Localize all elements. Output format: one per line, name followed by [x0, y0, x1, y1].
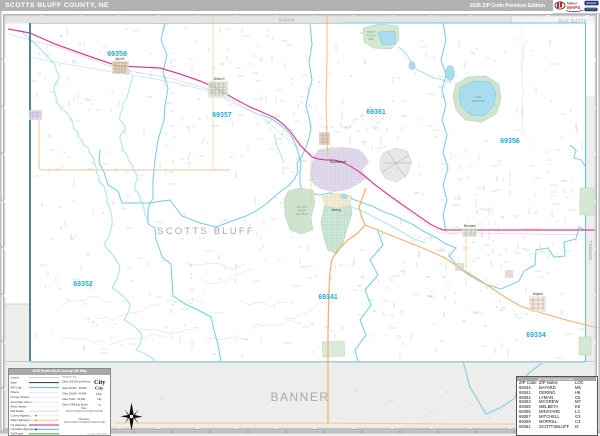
svg-text:City: City — [97, 398, 102, 401]
svg-text:Minor Streets: Minor Streets — [11, 404, 28, 408]
svg-text:MINATARE: MINATARE — [471, 99, 484, 103]
svg-text:Toll Roads: Toll Roads — [11, 431, 24, 435]
svg-text:Kilometers: Kilometers — [79, 418, 91, 421]
svg-text:Cities 4,999 and Below: Cities 4,999 and Below — [62, 403, 88, 406]
svg-text:Minatare: Minatare — [464, 224, 477, 228]
svg-text:ZIP Code: ZIP Code — [11, 385, 23, 389]
svg-text:Primary Streets: Primary Streets — [11, 395, 30, 399]
svg-text:69356: 69356 — [500, 138, 520, 145]
svg-text:Cities 5,000 - 24,999: Cities 5,000 - 24,999 — [62, 398, 86, 401]
svg-text:SIOUX: SIOUX — [279, 18, 296, 23]
svg-text:Cities 100,000 and Above: Cities 100,000 and Above — [62, 380, 91, 383]
svg-text:BOX BUTTE: BOX BUTTE — [559, 18, 587, 23]
svg-text:City: City — [98, 404, 103, 406]
svg-text:Cities 50,000 - 99,999: Cities 50,000 - 99,999 — [62, 387, 87, 390]
svg-text:Cities 25,000 - 49,999: Cities 25,000 - 49,999 — [62, 392, 87, 395]
svg-text:NWR: NWR — [368, 38, 374, 41]
svg-text:Bayard: Bayard — [533, 292, 543, 296]
svg-text:Scottsbluff: Scottsbluff — [330, 160, 346, 164]
svg-text:69357: 69357 — [212, 112, 232, 119]
svg-text:MAPS: MAPS — [567, 5, 580, 10]
svg-text:Morrill: Morrill — [116, 57, 125, 61]
svg-text:SCOTTS BLUFF: SCOTTS BLUFF — [157, 226, 255, 237]
svg-text:Streets: Streets — [11, 390, 20, 394]
svg-text:Copyright MarketMAPS: Copyright MarketMAPS — [87, 432, 109, 434]
svg-text:Mitchell: Mitchell — [214, 77, 225, 81]
svg-text:Gering: Gering — [331, 208, 341, 212]
svg-text:City: City — [96, 392, 102, 396]
svg-text:County: County — [11, 375, 20, 379]
svg-text:Miles: Miles — [81, 408, 87, 410]
svg-text:NAT MON: NAT MON — [296, 212, 308, 216]
svg-text:County Highways: County Highways — [11, 413, 33, 417]
svg-text:Rail Roads: Rail Roads — [11, 409, 25, 413]
svg-text:SCOTTS: SCOTTS — [297, 205, 308, 209]
svg-text:69334: 69334 — [526, 332, 546, 339]
svg-text:MORRILL: MORRILL — [588, 240, 593, 261]
svg-text:LAKE: LAKE — [475, 95, 482, 99]
svg-text:BANNER: BANNER — [270, 390, 329, 404]
svg-text:State Highways: State Highways — [11, 418, 30, 422]
svg-text:State: State — [11, 380, 18, 384]
svg-text:69361: 69361 — [366, 109, 386, 116]
svg-text:City: City — [95, 385, 104, 390]
svg-text:69352: 69352 — [73, 281, 93, 288]
svg-text:US Highways: US Highways — [11, 422, 28, 426]
svg-text:Population Key: Population Key — [62, 375, 78, 378]
svg-text:BLUFF: BLUFF — [298, 209, 307, 213]
svg-text:69341: 69341 — [318, 294, 338, 301]
